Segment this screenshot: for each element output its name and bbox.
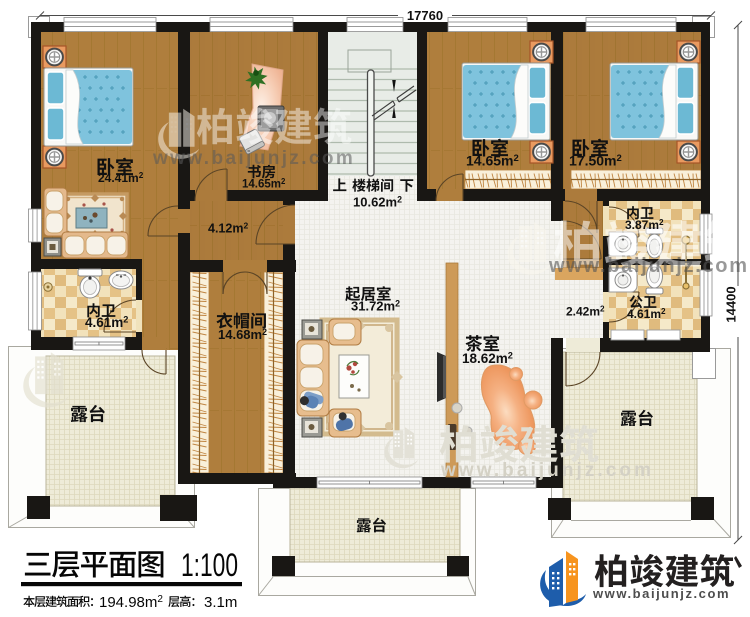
svg-text:10.62m2: 10.62m2 [353, 194, 402, 209]
svg-text:2.42m2: 2.42m2 [566, 305, 605, 319]
svg-text:14400: 14400 [724, 286, 739, 322]
svg-text:3.87m2: 3.87m2 [625, 218, 664, 232]
svg-text:www.baijunjz.com: www.baijunjz.com [592, 586, 730, 601]
svg-text:4.61m2: 4.61m2 [85, 315, 128, 330]
svg-text:1:100: 1:100 [181, 547, 238, 583]
svg-text:194.98m2: 194.98m2 [99, 594, 163, 611]
svg-text:4.12m2: 4.12m2 [208, 221, 248, 236]
svg-text:18.62m2: 18.62m2 [462, 351, 513, 366]
svg-text:14.65m2: 14.65m2 [242, 177, 286, 191]
svg-text:17.50m2: 17.50m2 [569, 153, 622, 169]
svg-text:17760: 17760 [407, 8, 443, 23]
svg-text:4.61m2: 4.61m2 [627, 307, 666, 321]
svg-text:www.baijunjz.com: www.baijunjz.com [440, 460, 653, 481]
svg-text:14.68m2: 14.68m2 [218, 327, 267, 342]
svg-text:24.41m2: 24.41m2 [98, 171, 144, 185]
svg-text:3.1m: 3.1m [204, 594, 237, 611]
svg-text:31.72m2: 31.72m2 [351, 298, 400, 313]
svg-text:14.65m2: 14.65m2 [466, 153, 519, 169]
svg-text:www.baijunjz.com: www.baijunjz.com [548, 255, 749, 277]
